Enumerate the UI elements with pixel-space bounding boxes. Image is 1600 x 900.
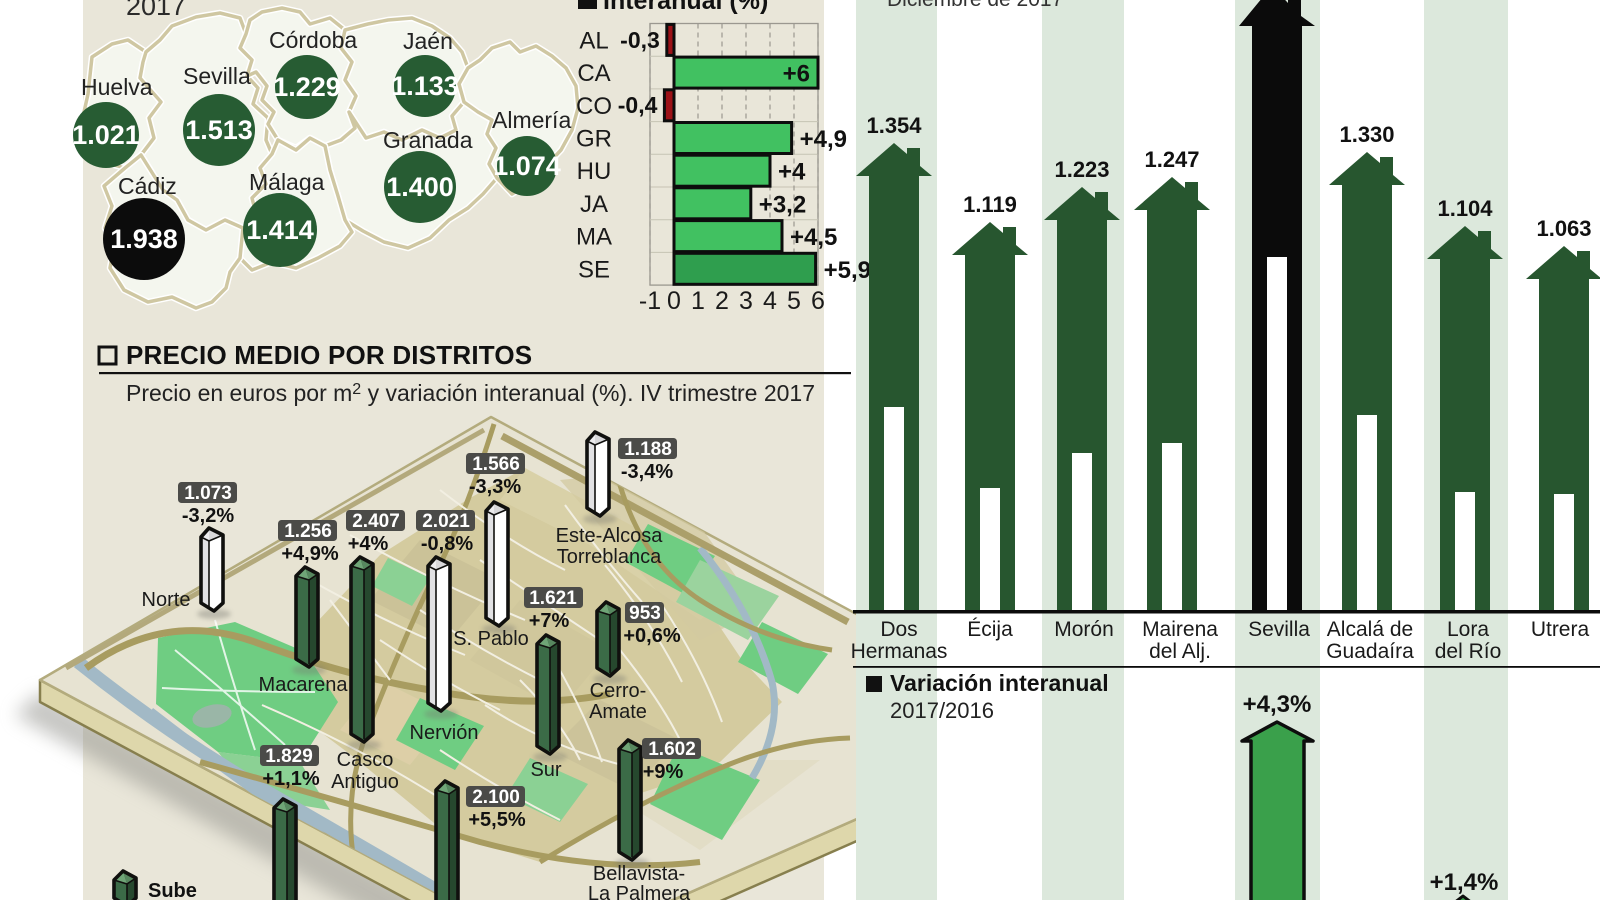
svg-text:Interanual (%): Interanual (%) [603, 0, 768, 15]
svg-text:-1: -1 [639, 287, 661, 315]
svg-text:+4%: +4% [348, 533, 389, 555]
svg-text:1.938: 1.938 [110, 224, 178, 254]
svg-text:2: 2 [715, 287, 729, 315]
svg-text:del Alj.: del Alj. [1149, 640, 1211, 663]
svg-text:1.188: 1.188 [624, 439, 672, 460]
svg-text:del Río: del Río [1435, 640, 1502, 663]
svg-text:S. Pablo: S. Pablo [453, 628, 529, 650]
svg-text:+4,9%: +4,9% [281, 543, 338, 565]
svg-text:1.133: 1.133 [391, 71, 459, 101]
svg-text:1.021: 1.021 [72, 120, 140, 150]
svg-text:1.513: 1.513 [185, 115, 253, 145]
svg-text:1.354: 1.354 [866, 113, 922, 138]
svg-text:1: 1 [691, 287, 705, 315]
svg-text:1.829: 1.829 [265, 746, 313, 767]
svg-text:1.229: 1.229 [273, 72, 341, 102]
svg-text:6: 6 [811, 287, 825, 315]
svg-text:+4,9: +4,9 [800, 126, 847, 153]
svg-text:Sur: Sur [530, 759, 561, 781]
svg-text:Cádiz: Cádiz [118, 173, 177, 199]
svg-text:1.074: 1.074 [493, 151, 561, 181]
svg-text:+7%: +7% [529, 610, 570, 632]
svg-text:2.100: 2.100 [472, 787, 520, 808]
svg-text:+6: +6 [783, 61, 810, 88]
svg-text:4: 4 [763, 287, 777, 315]
svg-text:+5,9: +5,9 [824, 257, 871, 284]
svg-text:1.621: 1.621 [529, 588, 577, 609]
svg-text:+1,4%: +1,4% [1430, 869, 1499, 896]
svg-text:-0,4: -0,4 [618, 92, 658, 118]
svg-text:PRECIO MEDIO POR DISTRITOS: PRECIO MEDIO POR DISTRITOS [126, 340, 532, 370]
svg-text:Lora: Lora [1447, 618, 1489, 641]
svg-text:Guadaíra: Guadaíra [1326, 640, 1414, 663]
svg-text:Hermanas: Hermanas [851, 640, 948, 663]
svg-text:-3,4%: -3,4% [621, 461, 673, 483]
svg-text:1.330: 1.330 [1339, 122, 1394, 147]
svg-text:Morón: Morón [1054, 618, 1114, 641]
svg-text:Jaén: Jaén [403, 28, 453, 54]
svg-text:Dos: Dos [880, 618, 917, 641]
svg-text:+3,2: +3,2 [759, 191, 806, 218]
svg-text:Bellavista-: Bellavista- [593, 863, 685, 885]
svg-text:+5,5%: +5,5% [468, 809, 525, 831]
svg-text:1.400: 1.400 [386, 172, 454, 202]
svg-text:Macarena: Macarena [259, 674, 349, 696]
svg-text:953: 953 [629, 603, 661, 624]
svg-text:Cerro-: Cerro- [590, 680, 647, 702]
svg-text:Nervión: Nervión [410, 722, 479, 744]
svg-text:Málaga: Málaga [249, 169, 325, 195]
svg-text:CO: CO [576, 93, 612, 120]
svg-text:1.223: 1.223 [1054, 157, 1109, 182]
svg-text:1.119: 1.119 [963, 192, 1017, 217]
svg-text:Precio en euros por m2 y varia: Precio en euros por m2 y variación inter… [126, 380, 815, 406]
svg-text:Diciembre de 2017: Diciembre de 2017 [887, 0, 1063, 11]
svg-text:Sevilla: Sevilla [183, 63, 251, 89]
svg-text:HU: HU [577, 158, 612, 185]
svg-text:2.021: 2.021 [422, 511, 470, 532]
svg-text:-3,3%: -3,3% [469, 476, 521, 498]
svg-text:GR: GR [576, 126, 612, 153]
svg-text:+1,1%: +1,1% [262, 768, 319, 790]
svg-text:+4,5: +4,5 [790, 224, 837, 251]
svg-text:1.073: 1.073 [184, 483, 232, 504]
svg-text:-0,8%: -0,8% [421, 533, 473, 555]
svg-text:SE: SE [578, 256, 610, 283]
svg-text:Mairena: Mairena [1142, 618, 1218, 641]
svg-text:Utrera: Utrera [1531, 618, 1590, 641]
svg-text:3: 3 [739, 287, 753, 315]
svg-text:1.247: 1.247 [1144, 147, 1199, 172]
svg-text:2017/2016: 2017/2016 [890, 698, 994, 723]
svg-text:Córdoba: Córdoba [269, 27, 357, 53]
svg-text:MA: MA [576, 224, 612, 251]
svg-text:+4: +4 [778, 159, 806, 186]
svg-text:JA: JA [580, 191, 608, 218]
svg-text:Este-Alcosa: Este-Alcosa [556, 525, 664, 547]
svg-text:1.566: 1.566 [472, 454, 520, 475]
svg-text:Huelva: Huelva [81, 74, 153, 100]
svg-text:Sube: Sube [148, 880, 197, 900]
svg-text:Norte: Norte [142, 589, 191, 611]
svg-text:Torreblanca: Torreblanca [557, 546, 662, 568]
svg-text:0: 0 [667, 287, 681, 315]
svg-text:-0,3: -0,3 [620, 27, 660, 53]
svg-text:Sevilla: Sevilla [1248, 618, 1310, 641]
svg-text:Écija: Écija [967, 618, 1013, 641]
svg-text:AL: AL [579, 27, 608, 54]
svg-text:1.063: 1.063 [1536, 216, 1591, 241]
svg-text:5: 5 [787, 287, 801, 315]
svg-text:Almería: Almería [492, 107, 571, 133]
svg-text:CA: CA [577, 60, 610, 87]
svg-text:+4,3%: +4,3% [1243, 691, 1312, 718]
svg-text:La Palmera: La Palmera [588, 883, 691, 900]
svg-text:Variación interanual: Variación interanual [890, 670, 1109, 696]
svg-text:1.414: 1.414 [246, 215, 314, 245]
svg-text:Casco: Casco [337, 749, 394, 771]
svg-text:Alcalá de: Alcalá de [1327, 618, 1413, 641]
svg-text:1.602: 1.602 [648, 739, 696, 760]
svg-text:+0,6%: +0,6% [623, 625, 680, 647]
svg-text:Amate: Amate [589, 701, 647, 723]
svg-text:2.407: 2.407 [352, 511, 400, 532]
svg-text:+9%: +9% [643, 761, 684, 783]
svg-text:Granada: Granada [383, 127, 473, 153]
svg-text:1.104: 1.104 [1437, 196, 1493, 221]
svg-text:2017: 2017 [126, 0, 186, 21]
svg-text:Antiguo: Antiguo [331, 771, 399, 793]
svg-text:1.256: 1.256 [284, 521, 332, 542]
svg-text:-3,2%: -3,2% [182, 505, 234, 527]
